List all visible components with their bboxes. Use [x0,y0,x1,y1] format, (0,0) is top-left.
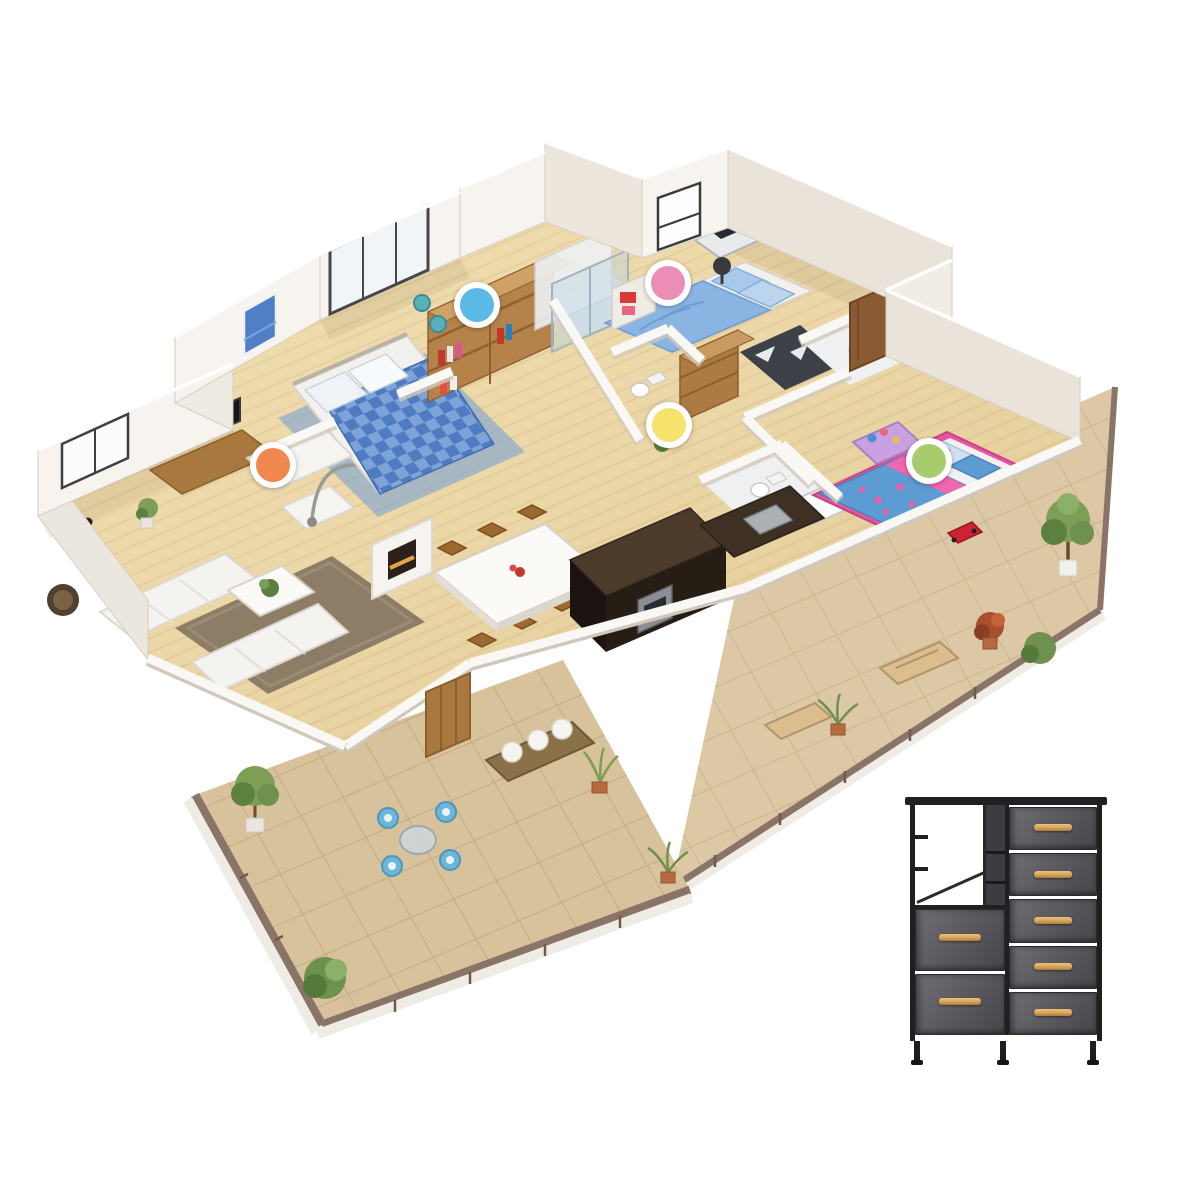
dresser-side-shelves [983,805,1005,907]
dresser-drawer [915,909,1005,971]
drawer-handle [939,998,981,1005]
dresser-open-shelf [915,805,1005,907]
dresser-drawer [1009,899,1097,942]
drawer-handle [1034,963,1072,970]
office-chair [713,257,731,275]
yellow-dot [652,408,686,442]
drawer-handle [1034,917,1072,924]
dresser-drawer [915,974,1005,1036]
blue-dot [460,288,494,322]
marker-yellow[interactable] [646,402,692,448]
drawer-handle [1034,824,1072,831]
dresser-right-drawers [1009,807,1097,1035]
green-dot [912,444,946,478]
marker-blue[interactable] [454,282,500,328]
product-dresser-image [908,797,1104,1065]
dresser-drawer [1009,853,1097,896]
stool [430,316,446,332]
pink-dot [651,266,685,300]
drawer-handle [939,934,981,941]
dresser-drawer [1009,992,1097,1035]
dresser-drawer [1009,946,1097,989]
dresser-drawer [1009,807,1097,850]
marker-pink[interactable] [645,260,691,306]
dresser-left-drawers [915,909,1005,1035]
drawer-handle [1034,1009,1072,1016]
scene [0,0,1200,1200]
orange-dot [256,448,290,482]
marker-orange[interactable] [250,442,296,488]
stool [414,295,430,311]
drawer-handle [1034,871,1072,878]
marker-green[interactable] [906,438,952,484]
